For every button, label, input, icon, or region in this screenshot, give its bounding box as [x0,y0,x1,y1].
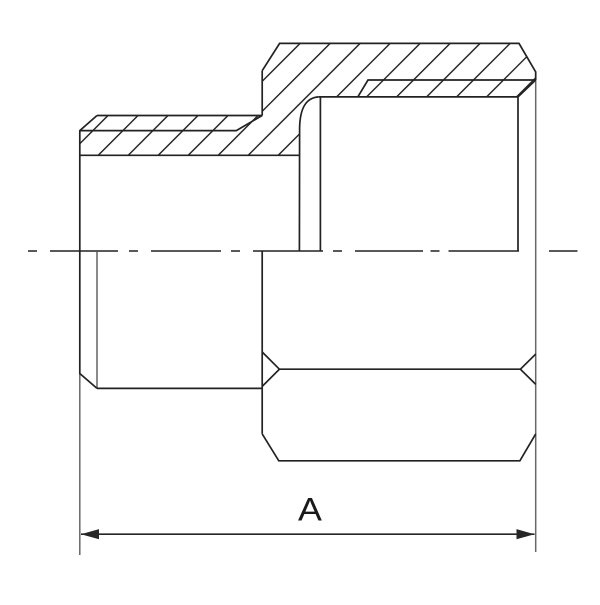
svg-text:A: A [298,492,322,528]
